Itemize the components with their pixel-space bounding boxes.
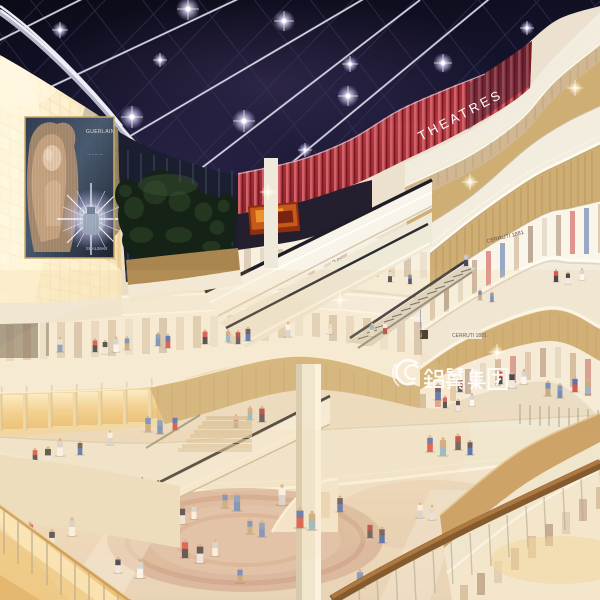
svg-text:GUERLAIN: GUERLAIN [86,129,115,135]
svg-text:–– ––– ––: –– ––– –– [87,152,103,156]
